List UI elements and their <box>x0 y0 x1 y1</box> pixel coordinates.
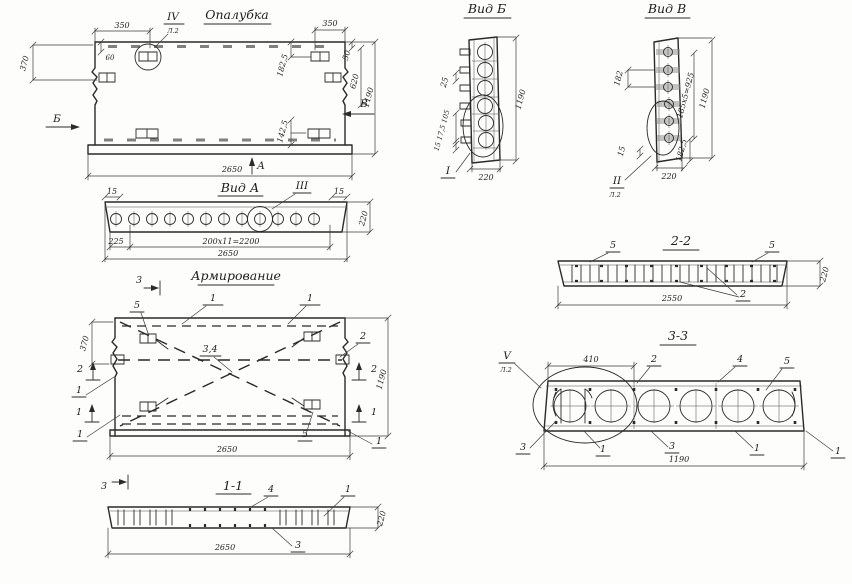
panel-bottom-flange <box>110 430 350 436</box>
anchor-plate <box>140 398 168 411</box>
hole-center-marks <box>668 45 669 145</box>
callout-1: 1 <box>210 293 216 304</box>
callout-3-4: 3,4 <box>202 344 217 355</box>
leader <box>288 306 306 324</box>
section-2-2: 2-2 5 5 2 2550 220 <box>555 233 831 309</box>
slab-outline <box>108 507 350 528</box>
cut-arrow-v-label: В <box>359 98 368 110</box>
detail-i-marker: I <box>445 165 451 177</box>
section-2-marker-label: 2 <box>76 364 83 375</box>
callout-1: 1 <box>600 444 606 455</box>
arrowhead <box>119 479 127 485</box>
view-b-strip <box>469 37 500 163</box>
callout-1: 1 <box>345 484 351 495</box>
callout-1: 1 <box>835 446 841 457</box>
dim-line <box>346 504 381 531</box>
detail-iv-marker: IV <box>166 11 180 23</box>
dim-1190: 1190 <box>669 455 689 464</box>
dim-220: 220 <box>660 172 676 181</box>
dim-620: 620 <box>348 73 361 90</box>
dim-370: 370 <box>78 335 91 352</box>
section-2-marker-label: 2 <box>370 364 377 375</box>
dim-220: 220 <box>375 510 388 528</box>
dim-220: 220 <box>357 210 370 228</box>
detail-ii-sheet-ref: Л.2 <box>608 191 621 199</box>
leader <box>251 497 268 507</box>
callout-5: 5 <box>610 240 616 251</box>
stirrup-ladder <box>572 265 777 282</box>
cut-arrow-a-label: А <box>256 160 265 172</box>
dim-line <box>453 110 459 153</box>
callout-5: 5 <box>784 356 790 367</box>
embed-plate <box>139 52 157 61</box>
dim-spacing: 185х5=925 <box>675 72 696 120</box>
void-holes <box>111 211 320 227</box>
arrowhead <box>356 362 362 370</box>
arrowhead <box>249 157 255 166</box>
dim-410: 410 <box>582 355 598 364</box>
stirrups-left <box>118 510 172 525</box>
dim-15-left: 15 <box>107 187 117 196</box>
callout-1: 1 <box>76 385 82 396</box>
callout-1: 1 <box>307 293 313 304</box>
cut-arrow-b-label: Б <box>52 113 61 125</box>
dim-350-left: 350 <box>114 21 129 30</box>
formwork-title: Опалубка <box>205 7 269 22</box>
leader <box>141 313 148 333</box>
reinforcement-title: Армирование <box>190 268 281 283</box>
dim-50: 50 <box>341 49 352 61</box>
dim-line <box>691 50 697 142</box>
view-a: Вид А III 15 15 225 200х11=220 <box>102 180 373 262</box>
view-v: Вид В II Л.2 182 185х5=925 <box>608 1 715 199</box>
callout-3: 3 <box>295 540 301 551</box>
dim-15: 15 <box>616 145 627 157</box>
dim-2650: 2650 <box>216 445 237 454</box>
dim-182-5: 182,5 <box>275 53 290 77</box>
anchor-plate <box>140 334 168 349</box>
arrowhead <box>90 362 96 370</box>
view-b-title: Вид Б <box>467 1 506 16</box>
dim-142-5: 142,5 <box>275 119 290 143</box>
dim-220: 220 <box>477 173 493 182</box>
callout-2: 2 <box>650 354 657 365</box>
leader <box>182 306 206 324</box>
groove-bands <box>656 49 681 141</box>
detail-v-marker: V <box>503 350 512 362</box>
leader <box>515 364 541 388</box>
view-a-strip <box>105 202 347 232</box>
bar-dots <box>575 266 776 281</box>
callout-3: 3 <box>669 441 675 452</box>
arrowhead <box>151 285 159 291</box>
detail-ii-marker: II <box>612 175 622 187</box>
leader <box>735 431 753 448</box>
arrowhead <box>342 111 351 117</box>
reinforcement-plan: Армирование 3 5 1 1 2 3,4 <box>72 268 391 492</box>
callout-1: 1 <box>754 443 760 454</box>
section-1-1: 1-1 4 1 3 2650 220 <box>105 478 388 558</box>
dim-line <box>288 117 306 148</box>
section-1-marker-label: 1 <box>371 407 377 418</box>
leader <box>272 528 292 546</box>
callout-4: 4 <box>267 484 274 495</box>
view-v-title: Вид В <box>647 1 686 16</box>
callout-2: 2 <box>739 289 746 300</box>
embed-plate <box>325 73 341 82</box>
dim-2650: 2650 <box>214 543 235 552</box>
callout-1: 1 <box>376 436 382 447</box>
stirrups-right <box>280 510 334 525</box>
arrowhead <box>71 124 80 130</box>
callout-5: 5 <box>769 240 775 251</box>
panel-right-edge <box>343 318 348 436</box>
dim-line <box>782 258 823 289</box>
section-1-marker-label: 1 <box>76 407 82 418</box>
dim-1190: 1190 <box>698 87 712 109</box>
dim-spacing: 200х11=2200 <box>201 237 259 246</box>
dim-25: 25 <box>439 76 451 89</box>
arrowhead <box>89 404 95 412</box>
drawing-sheet: Опалубка IV Л.2 350 350 60 370 182,5 50 … <box>0 0 852 584</box>
dim-line <box>349 39 355 51</box>
leader <box>456 153 470 172</box>
dim-line <box>89 319 113 367</box>
detail-v-sheet-ref: Л.2 <box>499 366 512 374</box>
dim-2650: 2650 <box>221 165 242 174</box>
drawing-canvas: Опалубка IV Л.2 350 350 60 370 182,5 50 … <box>0 0 852 584</box>
callout-5: 5 <box>134 300 140 311</box>
detail-ii-ellipse <box>647 101 679 155</box>
callout-1: 1 <box>77 429 83 440</box>
view-b: Вид Б I 25 15 17,5 105 1190 220 <box>433 1 528 182</box>
slab-inner-lines <box>560 265 785 282</box>
section-3-marker-label: 3 <box>136 275 142 286</box>
leader <box>348 431 372 444</box>
section-1-1-title: 1-1 <box>223 478 243 493</box>
dim-line <box>30 42 97 83</box>
dim-370: 370 <box>18 55 31 72</box>
dim-line <box>85 154 355 180</box>
leader <box>766 369 782 390</box>
section-2-2-title: 2-2 <box>670 233 691 248</box>
dim-line <box>453 70 459 84</box>
embed-plate <box>308 129 330 138</box>
embed-plate <box>311 52 329 61</box>
strip-inner-lines <box>472 38 499 162</box>
view-a-title: Вид А <box>220 180 260 195</box>
panel-bottom-flange <box>88 145 352 154</box>
leader <box>214 357 232 372</box>
dim-line <box>625 67 655 90</box>
arrowhead <box>356 404 362 412</box>
dim-60: 60 <box>106 54 115 62</box>
anchor-plate <box>292 398 320 409</box>
void-holes <box>550 389 799 423</box>
dim-line <box>637 146 643 159</box>
hole-center-marks <box>550 389 799 423</box>
section-3-3-title: 3-3 <box>668 328 688 343</box>
dim-182: 182 <box>612 70 625 87</box>
embed-plate <box>136 129 158 138</box>
dim-15-right: 15 <box>334 187 344 196</box>
dim-stack: 15 17,5 105 <box>433 108 452 151</box>
panel-left-edge <box>92 42 97 145</box>
leader <box>718 367 735 382</box>
side-holes <box>664 45 674 145</box>
dim-350-right: 350 <box>322 19 337 28</box>
callout-4: 4 <box>736 354 743 365</box>
leader <box>625 156 651 180</box>
dim-2650: 2650 <box>217 249 238 258</box>
section-3-marker-label: 3 <box>101 481 107 492</box>
detail-iii-marker: III <box>295 180 309 192</box>
formwork-plan: Опалубка IV Л.2 350 350 60 370 182,5 50 … <box>18 7 378 180</box>
dim-225: 225 <box>107 237 123 246</box>
leader <box>651 431 668 447</box>
diagonal-bars <box>120 322 340 426</box>
leader <box>584 431 600 448</box>
leader <box>806 431 833 451</box>
dim-2550: 2550 <box>661 294 682 303</box>
callout-3: 3 <box>520 442 526 453</box>
hole-center-marks <box>116 211 314 227</box>
anchor-plate <box>292 332 320 347</box>
callout-2: 2 <box>359 331 366 342</box>
hole-center-marks <box>485 42 486 150</box>
bottom-bars-dashed <box>122 416 338 424</box>
embed-plate <box>99 73 115 82</box>
section-3-3: 3-3 V Л.2 410 2 4 5 3 <box>499 328 845 470</box>
